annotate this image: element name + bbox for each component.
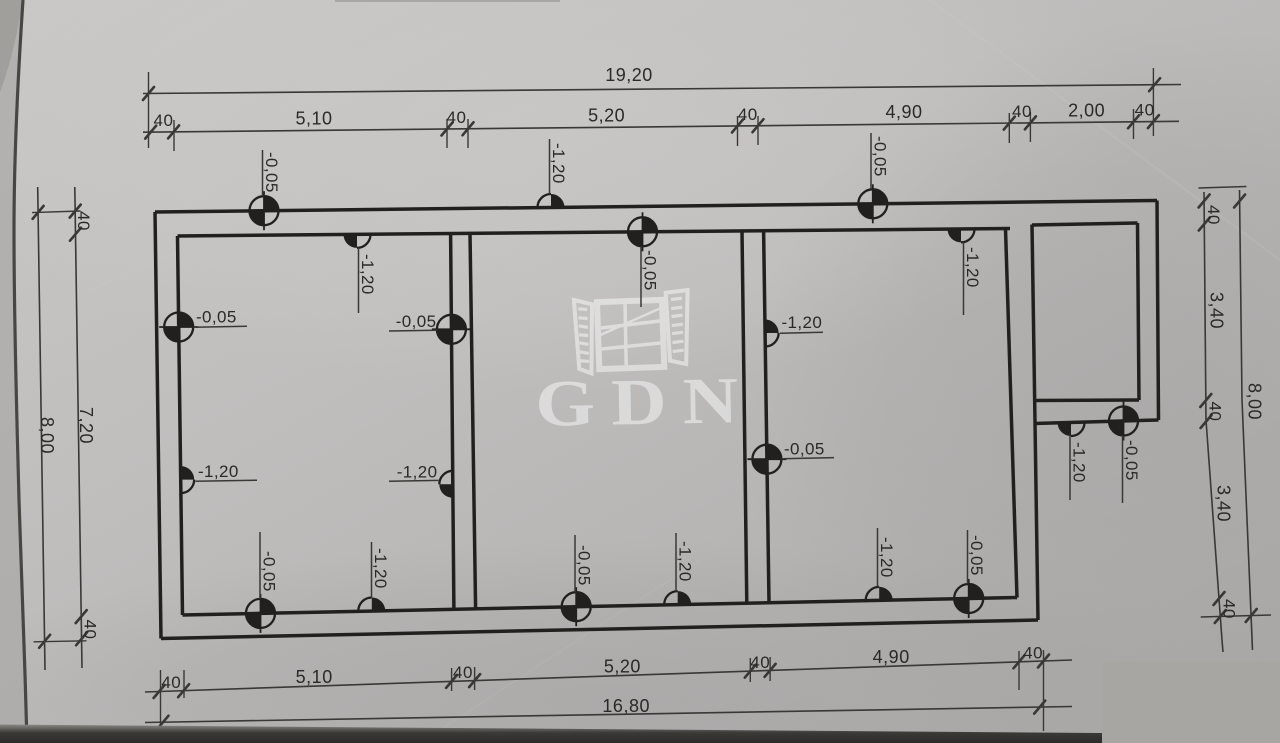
svg-text:40: 40: [1204, 205, 1223, 225]
svg-text:-0,05: -0,05: [196, 308, 237, 327]
svg-text:8,00: 8,00: [37, 417, 57, 454]
svg-text:-0,05: -0,05: [641, 250, 660, 291]
svg-text:40: 40: [1023, 643, 1043, 662]
svg-text:40: 40: [1220, 599, 1239, 619]
svg-text:-1,20: -1,20: [782, 313, 823, 332]
svg-text:-1,20: -1,20: [397, 462, 438, 481]
svg-text:-0,05: -0,05: [871, 136, 890, 177]
svg-text:3,40: 3,40: [1214, 485, 1234, 522]
svg-text:19,20: 19,20: [605, 65, 653, 85]
svg-text:40: 40: [74, 211, 93, 231]
svg-text:-0,05: -0,05: [262, 152, 281, 193]
svg-text:4,90: 4,90: [885, 102, 922, 122]
svg-text:-0,05: -0,05: [396, 312, 437, 331]
svg-text:16,80: 16,80: [602, 696, 650, 716]
svg-text:-1,20: -1,20: [371, 548, 390, 589]
svg-text:40: 40: [1206, 402, 1225, 422]
svg-text:40: 40: [81, 620, 100, 640]
svg-text:2,00: 2,00: [1068, 100, 1105, 120]
svg-text:5,20: 5,20: [604, 657, 641, 677]
svg-text:40: 40: [161, 673, 181, 692]
svg-text:-1,20: -1,20: [358, 254, 377, 295]
svg-text:40: 40: [1012, 102, 1032, 121]
svg-text:5,10: 5,10: [295, 108, 332, 128]
svg-text:40: 40: [750, 653, 770, 672]
svg-text:-1,20: -1,20: [198, 462, 239, 481]
svg-text:40: 40: [447, 108, 467, 127]
svg-text:40: 40: [1135, 101, 1155, 120]
svg-text:40: 40: [453, 663, 473, 682]
svg-text:-1,20: -1,20: [1070, 442, 1089, 483]
svg-text:3,40: 3,40: [1207, 292, 1227, 329]
svg-text:5,10: 5,10: [296, 667, 333, 687]
svg-text:40: 40: [154, 111, 174, 130]
svg-text:4,90: 4,90: [873, 647, 910, 667]
svg-text:40: 40: [738, 105, 758, 124]
svg-text:-1,20: -1,20: [877, 537, 896, 578]
svg-text:-0,05: -0,05: [260, 551, 279, 592]
svg-text:-0,05: -0,05: [967, 535, 986, 576]
svg-text:-1,20: -1,20: [963, 247, 982, 288]
svg-text:-1,20: -1,20: [676, 541, 695, 582]
svg-text:-0,05: -0,05: [784, 440, 825, 459]
svg-text:7,20: 7,20: [76, 407, 96, 444]
svg-text:-1,20: -1,20: [549, 143, 568, 184]
svg-text:GDN: GDN: [535, 364, 755, 441]
svg-text:5,20: 5,20: [588, 105, 625, 125]
svg-text:-0,05: -0,05: [575, 545, 594, 586]
svg-text:-0,05: -0,05: [1122, 440, 1141, 481]
svg-text:8,00: 8,00: [1245, 383, 1265, 420]
